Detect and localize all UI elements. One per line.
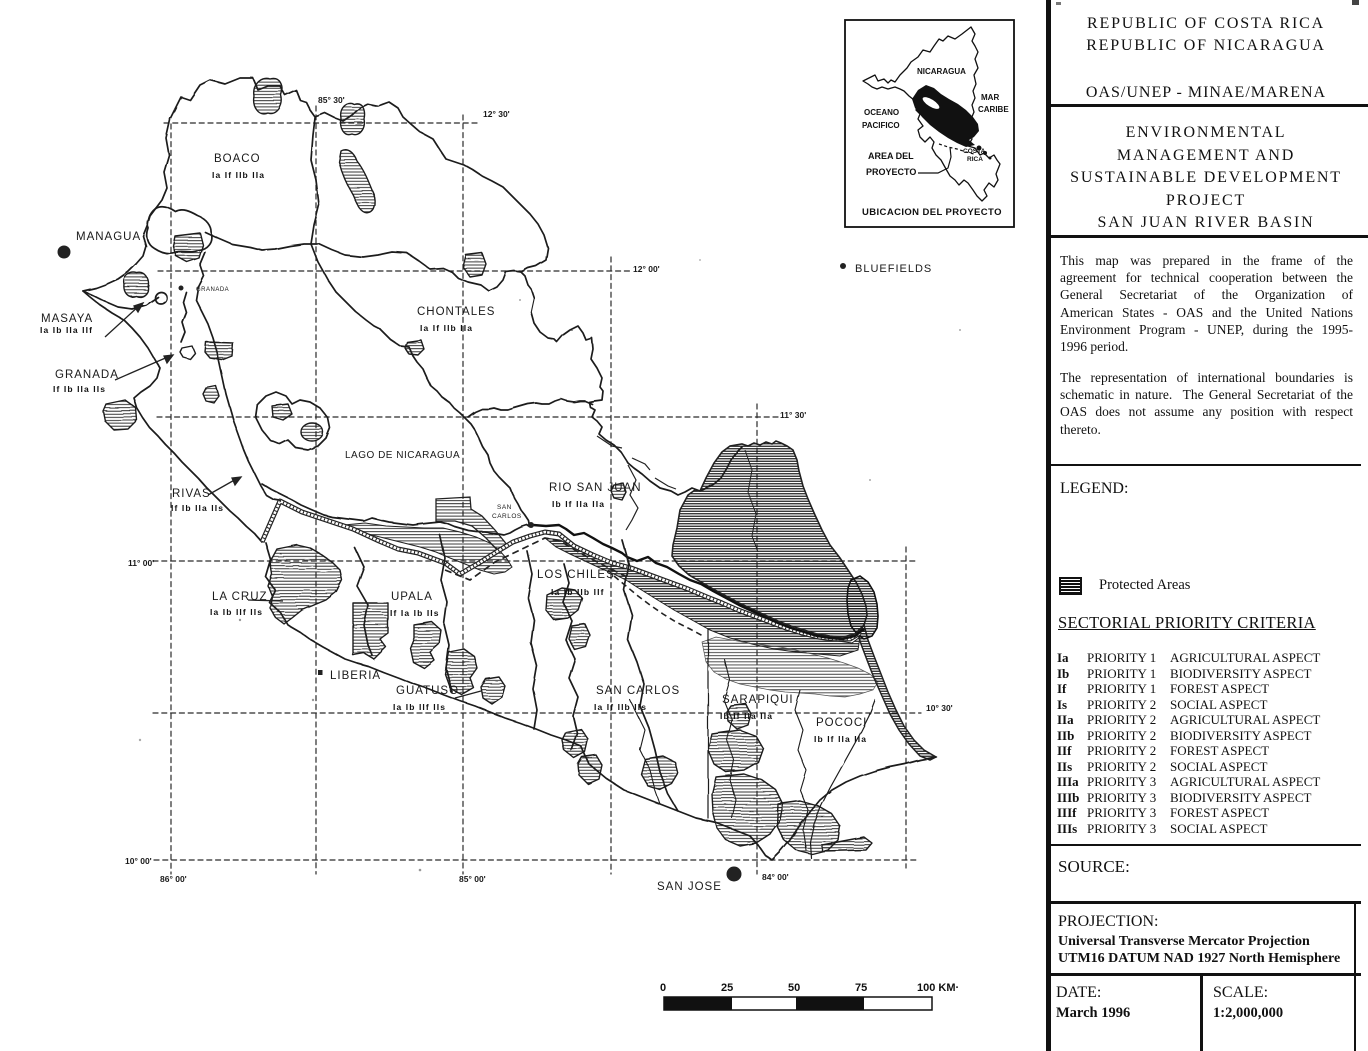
svg-text:AREA DEL: AREA DEL	[868, 151, 914, 161]
svg-text:12° 00': 12° 00'	[633, 264, 660, 274]
svg-text:RIO SAN JUAN: RIO SAN JUAN	[549, 482, 642, 494]
svg-text:Ib If IIa IIa: Ib If IIa IIa	[814, 734, 867, 744]
svg-text:Ib If IIa IIa: Ib If IIa IIa	[720, 711, 773, 721]
svg-text:75: 75	[855, 982, 867, 994]
svg-text:COSTA: COSTA	[963, 148, 986, 155]
svg-text:UBICACION DEL PROYECTO: UBICACION DEL PROYECTO	[862, 207, 1002, 218]
svg-text:Ia If IIb IIa: Ia If IIb IIa	[420, 323, 473, 333]
svg-text:If Ib IIa IIs: If Ib IIa IIs	[53, 384, 106, 394]
svg-text:Ia Ib IIf IIs: Ia Ib IIf IIs	[210, 607, 263, 617]
svg-text:POCOCI: POCOCI	[816, 717, 867, 729]
svg-text:25: 25	[721, 982, 733, 994]
svg-text:MASAYA: MASAYA	[41, 313, 93, 325]
svg-text:BLUEFIELDS: BLUEFIELDS	[855, 263, 932, 275]
svg-text:11° 30': 11° 30'	[780, 410, 806, 420]
svg-text:SAN JOSE: SAN JOSE	[657, 881, 722, 893]
svg-text:GRANADA: GRANADA	[55, 369, 119, 381]
svg-text:OCEANO: OCEANO	[864, 108, 899, 117]
svg-text:CHONTALES: CHONTALES	[417, 306, 495, 318]
svg-text:0: 0	[660, 982, 666, 994]
svg-text:RIVAS: RIVAS	[172, 488, 211, 500]
svg-text:Ia Ib IIb IIf: Ia Ib IIb IIf	[551, 587, 605, 597]
svg-text:50: 50	[788, 982, 800, 994]
svg-text:Ia If IIb IIa: Ia If IIb IIa	[212, 170, 265, 180]
svg-text:If Ib IIa IIs: If Ib IIa IIs	[171, 503, 224, 513]
svg-text:CARLOS: CARLOS	[492, 513, 522, 520]
svg-text:84° 00': 84° 00'	[762, 872, 789, 882]
svg-text:Ia Ib IIf IIs: Ia Ib IIf IIs	[393, 702, 446, 712]
svg-text:LAGO DE NICARAGUA: LAGO DE NICARAGUA	[345, 450, 460, 461]
svg-text:SARAPIQUI: SARAPIQUI	[722, 694, 794, 706]
svg-text:10° 30': 10° 30'	[926, 703, 953, 713]
svg-text:GRANADA: GRANADA	[196, 287, 229, 293]
svg-text:100 KM·: 100 KM·	[917, 982, 959, 994]
svg-text:If Ia Ib IIs: If Ia Ib IIs	[390, 608, 440, 618]
svg-text:PACIFICO: PACIFICO	[862, 121, 900, 130]
svg-text:MANAGUA: MANAGUA	[76, 231, 141, 243]
svg-text:85° 30': 85° 30'	[318, 95, 345, 105]
svg-text:RICA: RICA	[967, 156, 983, 163]
svg-text:LIBERIA: LIBERIA	[330, 670, 381, 682]
svg-text:86° 00': 86° 00'	[160, 874, 187, 884]
svg-text:Ia Ib IIa IIf: Ia Ib IIa IIf	[40, 325, 93, 335]
svg-text:CARIBE: CARIBE	[978, 105, 1009, 114]
svg-text:LOS CHILES: LOS CHILES	[537, 569, 615, 581]
svg-text:Ib If IIa IIa: Ib If IIa IIa	[552, 499, 605, 509]
svg-text:PROYECTO: PROYECTO	[866, 167, 916, 177]
svg-text:MAR: MAR	[981, 93, 999, 102]
svg-text:12° 30': 12° 30'	[483, 109, 510, 119]
svg-text:NICARAGUA: NICARAGUA	[917, 67, 966, 76]
svg-text:11° 00': 11° 00'	[128, 558, 154, 568]
svg-text:85° 00': 85° 00'	[459, 874, 486, 884]
svg-text:10° 00': 10° 00'	[125, 856, 152, 866]
svg-text:SAN: SAN	[497, 504, 512, 511]
svg-text:SAN CARLOS: SAN CARLOS	[596, 685, 680, 697]
svg-text:UPALA: UPALA	[391, 591, 433, 603]
svg-text:BOACO: BOACO	[214, 153, 261, 165]
svg-text:Ia If IIb IIs: Ia If IIb IIs	[594, 702, 647, 712]
svg-text:LA CRUZ: LA CRUZ	[212, 591, 268, 603]
svg-text:GUATUSO: GUATUSO	[396, 685, 459, 697]
